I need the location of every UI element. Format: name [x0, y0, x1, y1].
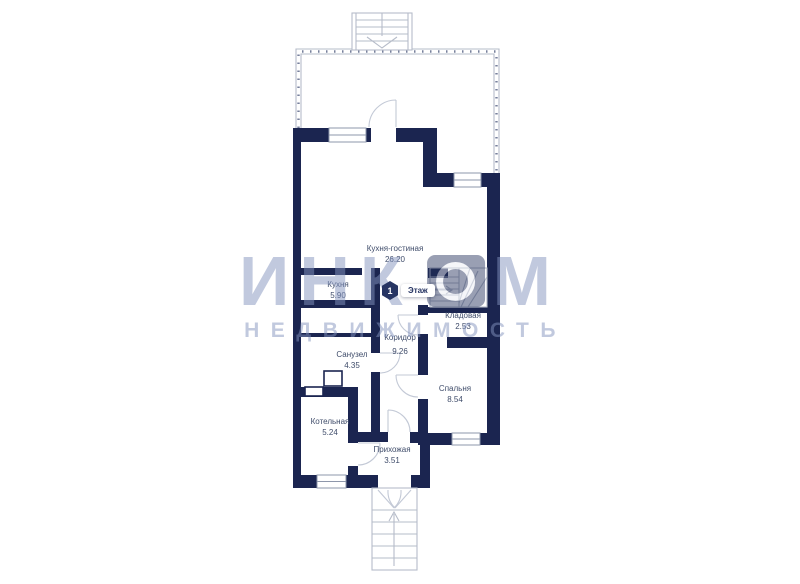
room-area: 2.53 [445, 322, 481, 333]
room-label-boiler: Котельная 5.24 [311, 417, 350, 439]
room-name: Санузел [336, 350, 367, 361]
floor-number: 1 [387, 286, 392, 296]
room-area: 26.20 [367, 255, 424, 266]
room-name: Прихожая [373, 445, 410, 456]
floor-badge: 1 Этаж [382, 281, 435, 300]
room-label-hallway: Прихожая 3.51 [373, 445, 410, 467]
terrace-stairs [352, 13, 412, 50]
floor-label: Этаж [401, 284, 435, 297]
terrace-outline [296, 49, 499, 182]
room-area: 5.90 [327, 291, 348, 302]
floor-number-cube-icon: 1 [382, 281, 398, 300]
room-label-corridor: Коридор 9.26 [384, 331, 416, 360]
room-name: Спальня [439, 384, 471, 395]
room-label-storage: Кладовая 2.53 [445, 311, 481, 333]
room-label-bedroom: Спальня 8.54 [439, 384, 471, 406]
floor-plan-canvas: Кухня-гостиная 26.20 Кухня 5.90 Кладовая… [0, 0, 800, 584]
entrance-stairs [372, 488, 417, 570]
room-area: 3.51 [373, 456, 410, 467]
room-label-bathroom: Санузел 4.35 [336, 350, 367, 372]
room-name: Кухня-гостиная [367, 244, 424, 255]
room-area: 8.54 [439, 395, 471, 406]
room-area: 5.24 [311, 428, 350, 439]
room-name: Котельная [311, 417, 350, 428]
room-area: 9.26 [384, 345, 416, 359]
room-name: Кладовая [445, 311, 481, 322]
room-name: Коридор [384, 331, 416, 345]
room-area: 4.35 [336, 361, 367, 372]
room-label-kitchen-living: Кухня-гостиная 26.20 [367, 244, 424, 266]
room-label-kitchen: Кухня 5.90 [327, 280, 348, 302]
room-name: Кухня [327, 280, 348, 291]
